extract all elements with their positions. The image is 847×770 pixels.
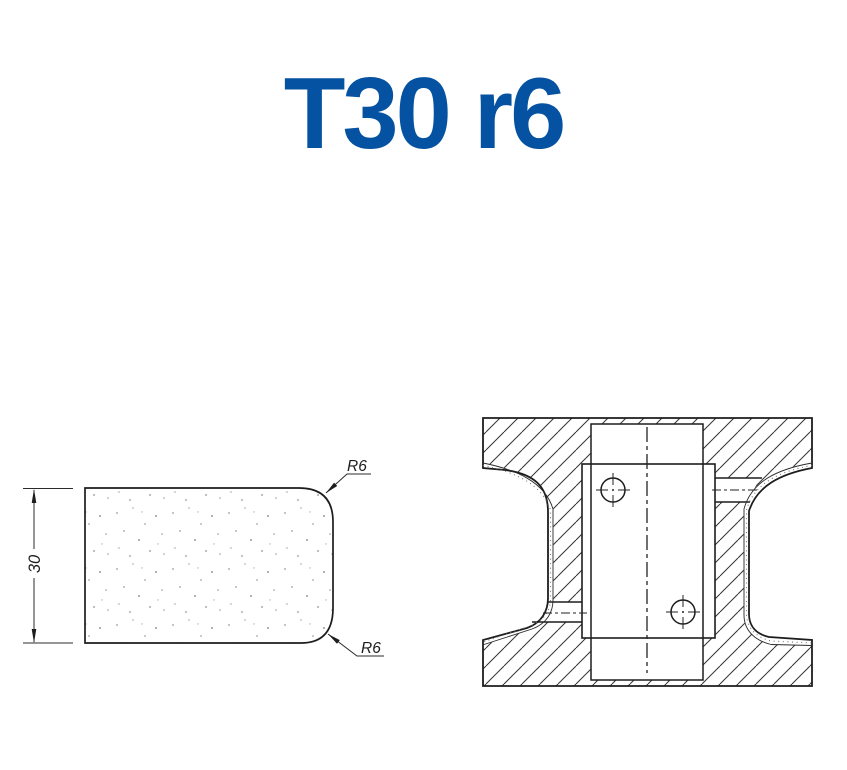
radius-callout-top: R6 [326, 458, 371, 493]
radius-callout-bottom: R6 [328, 634, 384, 657]
leader-arrow-bottom [328, 634, 340, 644]
leader-line-top [326, 474, 371, 493]
coating-band-right [747, 466, 813, 644]
pin-slot-left-fill [532, 602, 582, 622]
dimension-arrow-down [32, 629, 37, 643]
technical-drawing-canvas: 30 R6 R6 [0, 0, 847, 770]
leader-arrow-top [326, 483, 337, 493]
section-view [483, 418, 812, 686]
height-dimension-value: 30 [26, 554, 44, 573]
dimension-arrow-up [32, 489, 37, 503]
height-dimension: 30 [23, 489, 73, 644]
coating-band-left [483, 466, 551, 643]
profile-shape [85, 488, 333, 643]
radius-label-top: R6 [347, 458, 367, 475]
radius-label-bottom: R6 [361, 640, 381, 657]
profile-view: 30 R6 R6 [23, 458, 384, 657]
